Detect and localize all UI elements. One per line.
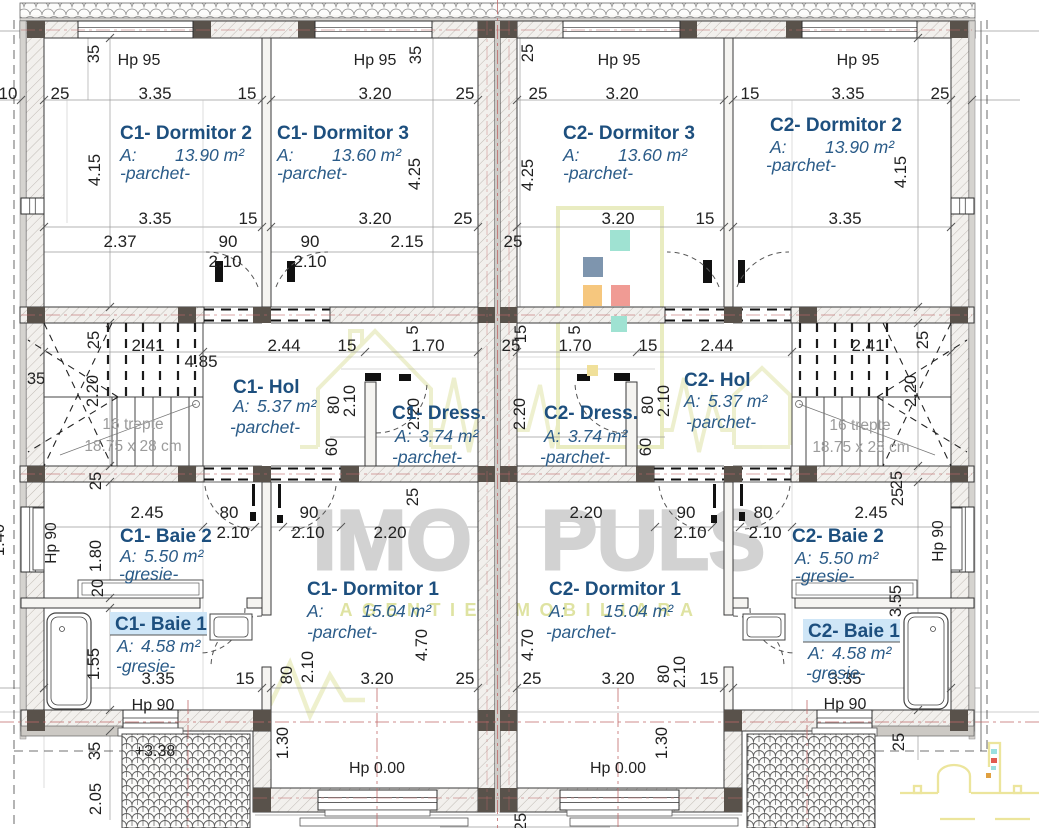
svg-text:3.35: 3.35 (138, 209, 171, 228)
svg-text:2.44: 2.44 (267, 336, 300, 355)
svg-text:15: 15 (512, 325, 530, 343)
svg-text:16 trepte: 16 trepte (102, 416, 163, 433)
svg-text:4.70: 4.70 (413, 629, 431, 661)
svg-text:4.25: 4.25 (519, 159, 537, 191)
svg-text:1.40: 1.40 (0, 524, 8, 556)
svg-text:1.55: 1.55 (85, 648, 103, 680)
svg-text:5: 5 (404, 325, 422, 334)
svg-text:25: 25 (519, 44, 537, 62)
svg-text:Hp 90: Hp 90 (132, 697, 175, 714)
svg-text:A:: A: (548, 601, 566, 621)
svg-text:2.37: 2.37 (103, 232, 136, 251)
svg-text:90: 90 (300, 503, 319, 522)
svg-text:25: 25 (504, 232, 523, 251)
svg-text:4.15: 4.15 (86, 154, 104, 186)
svg-text:35: 35 (86, 742, 104, 760)
svg-text:Hp 0.00: Hp 0.00 (349, 760, 405, 777)
svg-text:4.85: 4.85 (184, 352, 217, 371)
svg-text:3.74 m²: 3.74 m² (568, 426, 628, 446)
svg-text:2.10: 2.10 (216, 523, 249, 542)
svg-text:15: 15 (239, 209, 258, 228)
svg-text:A:: A: (394, 426, 412, 446)
svg-text:3.20: 3.20 (358, 84, 391, 103)
svg-text:Hp 95: Hp 95 (354, 52, 397, 69)
svg-text:C1- Hol: C1- Hol (233, 377, 300, 398)
svg-text:1.80: 1.80 (87, 540, 105, 572)
svg-text:2.41: 2.41 (131, 336, 164, 355)
svg-text:2.10: 2.10 (673, 523, 706, 542)
svg-text:3.74 m²: 3.74 m² (419, 426, 479, 446)
svg-text:Hp 95: Hp 95 (837, 52, 880, 69)
svg-text:25: 25 (889, 488, 907, 506)
svg-text:60: 60 (323, 438, 341, 456)
svg-text:3.55: 3.55 (887, 585, 905, 617)
svg-text:2.10: 2.10 (293, 252, 326, 271)
svg-text:2.10: 2.10 (748, 523, 781, 542)
svg-text:-gresie-: -gresie- (806, 663, 865, 683)
svg-text:2.20: 2.20 (373, 523, 406, 542)
svg-text:18.75 x 28 cm: 18.75 x 28 cm (812, 439, 909, 456)
svg-text:-parchet-: -parchet- (546, 622, 616, 642)
svg-text:3.35: 3.35 (138, 84, 171, 103)
svg-text:A:: A: (807, 643, 825, 663)
svg-text:A:: A: (794, 548, 812, 568)
svg-text:25: 25 (85, 331, 103, 349)
svg-text:80: 80 (754, 503, 773, 522)
svg-text:60: 60 (637, 438, 655, 456)
svg-text:C1- Dress.: C1- Dress. (392, 403, 486, 424)
svg-text:15: 15 (696, 209, 715, 228)
svg-text:1.70: 1.70 (411, 336, 444, 355)
svg-text:C1- Dormitor 3: C1- Dormitor 3 (277, 123, 409, 144)
svg-text:15: 15 (639, 336, 658, 355)
svg-text:16 trepte: 16 trepte (829, 417, 890, 434)
svg-text:A:: A: (543, 426, 561, 446)
svg-text:4.25: 4.25 (406, 158, 424, 190)
svg-text:2.45: 2.45 (130, 503, 163, 522)
svg-text:+3.38: +3.38 (135, 743, 176, 760)
svg-text:1.30: 1.30 (274, 727, 292, 759)
svg-text:2.41: 2.41 (851, 336, 884, 355)
svg-text:2.15: 2.15 (390, 232, 423, 251)
svg-text:90: 90 (677, 503, 696, 522)
svg-text:Hp 90: Hp 90 (930, 520, 947, 562)
svg-text:13.90 m²: 13.90 m² (175, 145, 245, 165)
svg-text:2.20: 2.20 (84, 375, 102, 407)
svg-text:2.10: 2.10 (299, 651, 317, 683)
svg-text:-parchet-: -parchet- (230, 417, 300, 437)
svg-text:15.04 m²: 15.04 m² (362, 601, 432, 621)
svg-text:3.20: 3.20 (601, 669, 634, 688)
svg-text:C2- Dress.: C2- Dress. (544, 403, 638, 424)
svg-text:2.20: 2.20 (569, 503, 602, 522)
svg-text:A:: A: (119, 145, 137, 165)
svg-text:2.10: 2.10 (208, 252, 241, 271)
svg-text:2.44: 2.44 (700, 336, 733, 355)
svg-text:3.20: 3.20 (360, 669, 393, 688)
svg-text:C1- Dormitor 1: C1- Dormitor 1 (307, 579, 439, 600)
svg-text:C1- Baie 2: C1- Baie 2 (120, 526, 212, 547)
svg-text:A:: A: (306, 601, 324, 621)
svg-text:80: 80 (220, 503, 239, 522)
svg-text:20: 20 (89, 579, 107, 597)
svg-text:90: 90 (301, 232, 320, 251)
svg-text:A:: A: (683, 391, 701, 411)
svg-text:35: 35 (407, 46, 425, 64)
svg-text:-parchet-: -parchet- (307, 622, 377, 642)
svg-text:3.20: 3.20 (605, 84, 638, 103)
svg-text:13.60 m²: 13.60 m² (618, 145, 688, 165)
svg-text:5: 5 (566, 325, 584, 334)
svg-text:-parchet-: -parchet- (563, 163, 633, 183)
svg-text:4.15: 4.15 (892, 156, 910, 188)
svg-text:25: 25 (529, 84, 548, 103)
svg-text:-parchet-: -parchet- (540, 447, 610, 467)
svg-text:-parchet-: -parchet- (766, 155, 836, 175)
svg-text:-parchet-: -parchet- (392, 447, 462, 467)
svg-text:3.35: 3.35 (831, 84, 864, 103)
svg-text:C2- Hol: C2- Hol (684, 370, 751, 391)
svg-text:A:: A: (562, 145, 580, 165)
svg-text:2.10: 2.10 (671, 656, 689, 688)
svg-text:4.58 m²: 4.58 m² (832, 643, 892, 663)
svg-text:2.20: 2.20 (902, 375, 920, 407)
svg-text:2.10: 2.10 (291, 523, 324, 542)
svg-text:15: 15 (236, 669, 255, 688)
svg-text:25: 25 (404, 488, 422, 506)
svg-text:2.05: 2.05 (87, 783, 105, 815)
svg-text:25: 25 (888, 471, 906, 489)
svg-text:-parchet-: -parchet- (277, 163, 347, 183)
svg-text:35: 35 (85, 45, 103, 63)
svg-text:Hp 90: Hp 90 (824, 696, 867, 713)
svg-text:25: 25 (454, 209, 473, 228)
svg-text:4.70: 4.70 (519, 629, 537, 661)
svg-text:C2- Dormitor 3: C2- Dormitor 3 (563, 123, 695, 144)
svg-text:15: 15 (741, 84, 760, 103)
svg-text:2.10: 2.10 (655, 385, 673, 417)
svg-text:90: 90 (219, 232, 238, 251)
svg-text:3.20: 3.20 (358, 209, 391, 228)
svg-text:C1- Dormitor 2: C1- Dormitor 2 (120, 123, 252, 144)
svg-text:25: 25 (87, 472, 105, 490)
svg-text:13.90 m²: 13.90 m² (825, 137, 895, 157)
svg-text:Hp 95: Hp 95 (118, 52, 161, 69)
svg-text:25: 25 (51, 84, 70, 103)
svg-text:3.35: 3.35 (828, 209, 861, 228)
svg-text:4.58 m²: 4.58 m² (141, 636, 201, 656)
svg-text:-parchet-: -parchet- (686, 412, 756, 432)
svg-text:-gresie-: -gresie- (795, 566, 854, 586)
svg-text:80: 80 (278, 666, 296, 684)
svg-text:Hp 95: Hp 95 (598, 52, 641, 69)
svg-text:C2- Dormitor 2: C2- Dormitor 2 (770, 115, 902, 136)
svg-text:5.50 m²: 5.50 m² (819, 548, 879, 568)
svg-text:5.37 m²: 5.37 m² (708, 391, 768, 411)
svg-text:A:: A: (232, 396, 250, 416)
svg-text:-gresie-: -gresie- (116, 656, 175, 676)
svg-text:5.50 m²: 5.50 m² (144, 546, 204, 566)
svg-text:5.37 m²: 5.37 m² (257, 396, 317, 416)
svg-text:18.75 x 28 cm: 18.75 x 28 cm (84, 438, 181, 455)
svg-text:Hp 0.00: Hp 0.00 (590, 760, 646, 777)
svg-text:1.70: 1.70 (558, 336, 591, 355)
svg-text:2.10: 2.10 (341, 385, 359, 417)
svg-text:A:: A: (116, 636, 134, 656)
svg-text:15: 15 (338, 336, 357, 355)
svg-text:C2- Dormitor 1: C2- Dormitor 1 (549, 579, 681, 600)
svg-text:13.60 m²: 13.60 m² (332, 145, 402, 165)
svg-text:25: 25 (512, 813, 530, 828)
svg-text:1.30: 1.30 (653, 727, 671, 759)
svg-text:25: 25 (914, 331, 932, 349)
svg-text:25: 25 (456, 84, 475, 103)
svg-text:C2- Baie 1: C2- Baie 1 (808, 621, 900, 642)
svg-text:A:: A: (276, 145, 294, 165)
svg-text:A:: A: (769, 137, 787, 157)
svg-text:25: 25 (456, 669, 475, 688)
svg-text:C2- Baie 2: C2- Baie 2 (792, 526, 884, 547)
svg-text:35: 35 (27, 370, 45, 388)
svg-text:15: 15 (700, 669, 719, 688)
svg-text:2.45: 2.45 (854, 503, 887, 522)
svg-text:2.20: 2.20 (511, 398, 529, 430)
svg-text:25: 25 (890, 733, 908, 751)
svg-text:25: 25 (523, 669, 542, 688)
svg-text:10: 10 (0, 84, 17, 103)
svg-text:15: 15 (238, 84, 257, 103)
svg-text:C1- Baie 1: C1- Baie 1 (115, 614, 207, 635)
svg-text:A:: A: (119, 546, 137, 566)
svg-text:Hp 90: Hp 90 (43, 522, 60, 564)
svg-text:-parchet-: -parchet- (120, 163, 190, 183)
svg-text:15.04 m²: 15.04 m² (604, 601, 674, 621)
svg-text:3.20: 3.20 (601, 209, 634, 228)
svg-text:-gresie-: -gresie- (119, 564, 178, 584)
svg-text:25: 25 (931, 84, 950, 103)
